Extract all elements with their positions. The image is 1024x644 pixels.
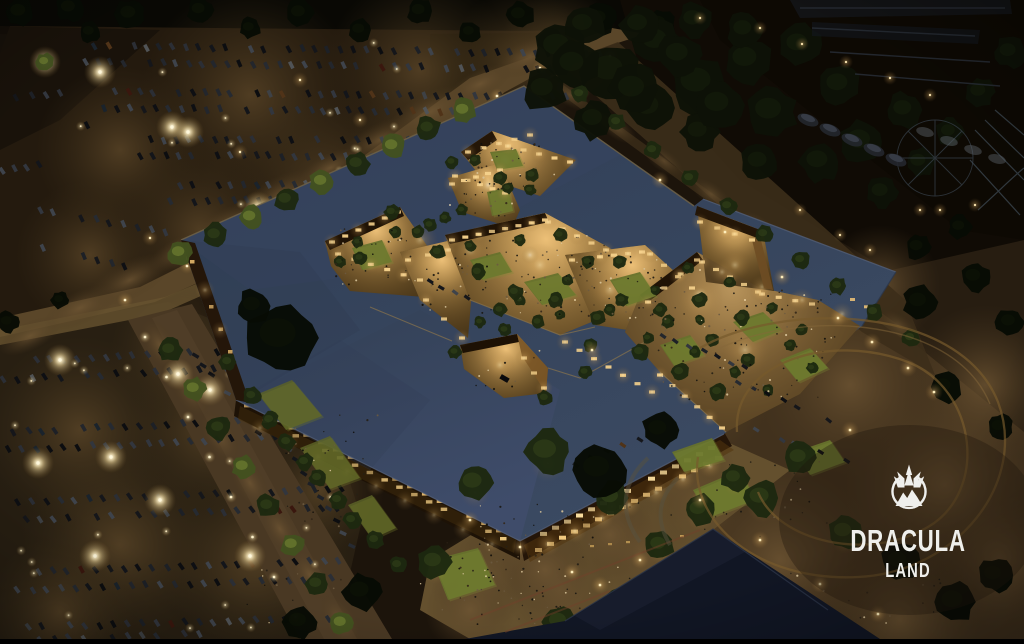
svg-text:LAND: LAND [885, 559, 931, 582]
svg-text:DRACULA: DRACULA [850, 523, 965, 557]
